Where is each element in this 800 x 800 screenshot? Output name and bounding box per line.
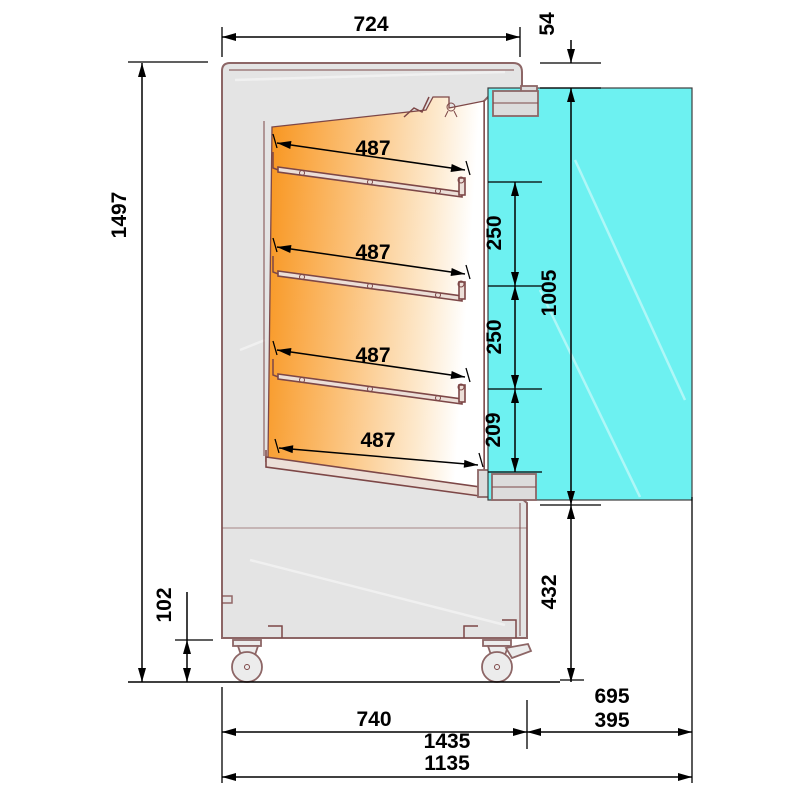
dim-label-724: 724 [353, 13, 388, 36]
dim-label-487-1: 487 [355, 137, 390, 160]
dim-label-1135: 1135 [424, 752, 470, 775]
dim-label-1005: 1005 [538, 269, 561, 316]
dim-label-487-4: 487 [360, 429, 395, 452]
caster-rear [482, 640, 531, 682]
dim-label-487-2: 487 [355, 241, 390, 264]
dim-label-102: 102 [153, 587, 176, 622]
dim-label-1497: 1497 [108, 192, 131, 239]
dimension-102: 102 [153, 587, 213, 682]
dimension-432: 432 [538, 505, 584, 682]
caster-front [232, 640, 262, 682]
dim-label-487-3: 487 [355, 344, 390, 367]
dim-label-250-upper: 250 [483, 215, 506, 250]
door-assembly [488, 86, 692, 500]
dim-label-209: 209 [482, 412, 505, 447]
dim-label-395: 395 [594, 709, 629, 732]
dim-label-1435: 1435 [424, 730, 471, 753]
dim-label-432: 432 [538, 574, 561, 609]
dim-label-54: 54 [536, 12, 559, 36]
drawing-canvas: 1497 724 54 1005 432 250 2 [0, 0, 800, 800]
dim-label-740: 740 [356, 708, 391, 731]
dimension-54: 54 [536, 12, 601, 88]
door-panel [488, 88, 692, 500]
dim-label-695: 695 [594, 685, 629, 708]
dimension-724: 724 [222, 13, 520, 57]
dim-label-250-lower: 250 [483, 319, 506, 354]
